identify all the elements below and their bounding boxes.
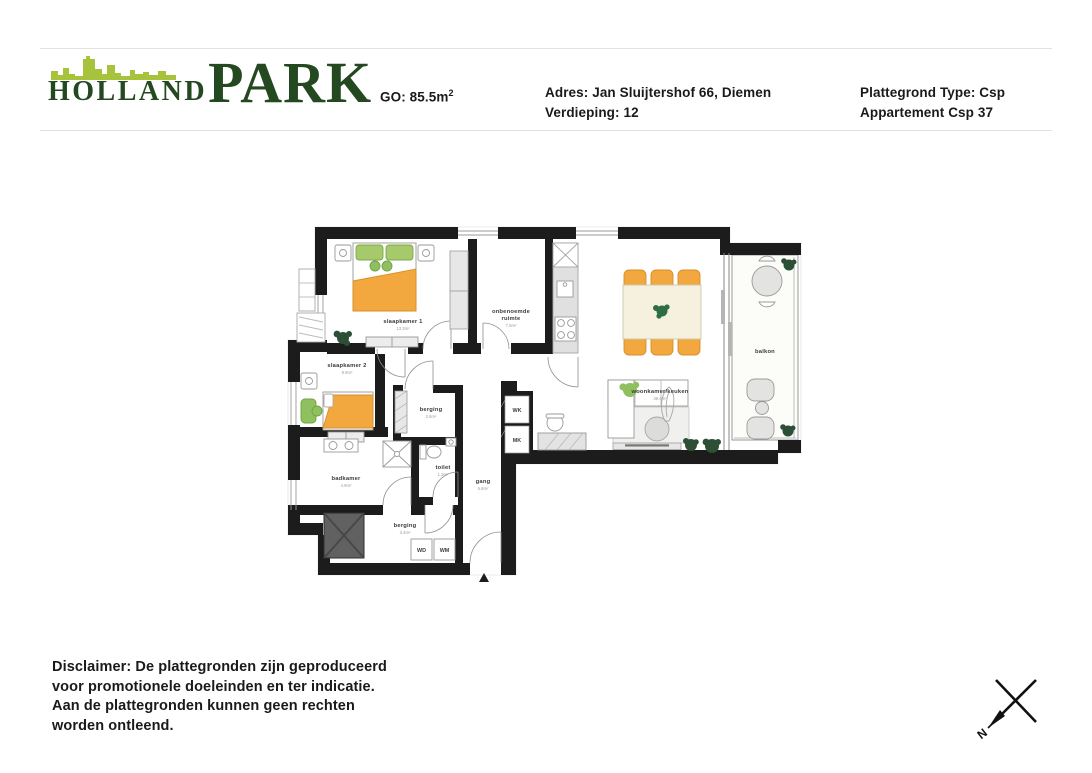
room-area-onbenoemde: 7.5m²	[506, 323, 517, 328]
washer-label: WM	[440, 548, 450, 554]
room-area-slaapkamer1: 13.3m²	[396, 326, 410, 331]
pillow	[386, 245, 413, 260]
plan-type-line: Plattegrond Type: Csp	[860, 83, 1005, 103]
room-area-berging2: 3.4m²	[400, 530, 411, 535]
compass-north-label: N	[975, 726, 990, 742]
disclaimer-line: worden ontleend.	[52, 717, 387, 737]
room-area-toilet: 1.3m²	[438, 472, 449, 477]
go-area: GO: 85.5m2	[380, 83, 454, 108]
balcony-table	[752, 266, 782, 296]
wk-label: WK	[513, 408, 522, 414]
room-area-gang: 5.6m²	[478, 486, 489, 491]
room-label-slaapkamer2: slaapkamer 2	[327, 363, 366, 369]
room-area-berging1: 2.6m²	[426, 414, 437, 419]
logo-word-holland: HOLLAND	[48, 81, 207, 104]
go-area-sup: 2	[448, 88, 453, 98]
pillow	[356, 245, 383, 260]
plan-type-block: Plattegrond Type: Csp Appartement Csp 37	[860, 83, 1005, 123]
room-label-onbenoemde-1: onbenoemde	[492, 309, 531, 315]
pillow	[324, 394, 333, 407]
floor-plan: WD WM WK MK	[283, 195, 813, 590]
logo-word-park: PARK	[208, 62, 372, 104]
floor-line: Verdieping: 12	[545, 103, 771, 123]
sliding-door-panel-2	[728, 322, 732, 356]
technical-closets: WK MK	[501, 391, 533, 457]
north-arrow-icon: N	[972, 670, 1050, 746]
compass: N	[972, 670, 1050, 751]
dryer-label: WD	[417, 548, 426, 554]
go-area-label: GO: 85.5m	[380, 90, 448, 105]
header-divider-top	[40, 48, 1052, 49]
room-label-toilet: toilet	[435, 465, 450, 471]
desk	[538, 433, 586, 450]
closet	[299, 269, 315, 311]
tv	[625, 444, 669, 446]
disclaimer-line: Aan de plattegronden kunnen geen rechten	[52, 697, 387, 717]
room-label-onbenoemde-2: ruimte	[502, 316, 521, 322]
lounge-chair	[747, 379, 774, 401]
balcony-side-table	[756, 402, 769, 415]
wardrobe	[450, 291, 468, 329]
address-line: Adres: Jan Sluijtershof 66, Diemen	[545, 83, 771, 103]
room-label-berging2: berging	[394, 523, 417, 529]
disclaimer-line: Disclaimer: De plattegronden zijn geprod…	[52, 658, 387, 678]
shaft	[324, 513, 364, 558]
address-block: Adres: Jan Sluijtershof 66, Diemen Verdi…	[545, 83, 771, 123]
sliding-door-panel	[721, 290, 725, 324]
mk-label: MK	[513, 438, 521, 444]
kitchen	[553, 243, 578, 353]
room-area-woonkamer: 39.4m²	[653, 396, 667, 401]
room-label-slaapkamer1: slaapkamer 1	[383, 319, 423, 325]
apartment-line: Appartement Csp 37	[860, 103, 1005, 123]
disclaimer-line: voor promotionele doeleinden en ter indi…	[52, 678, 387, 698]
room-label-berging1: berging	[420, 407, 443, 413]
disclaimer: Disclaimer: De plattegronden zijn geprod…	[52, 658, 387, 736]
dining-set	[623, 270, 701, 355]
room-area-slaapkamer2: 9.9m²	[342, 370, 353, 375]
wardrobe	[450, 251, 468, 291]
room-label-woonkamer: woonkamer/keuken	[630, 389, 688, 395]
room-area-badkamer: 4.9m²	[341, 483, 352, 488]
room-label-badkamer: badkamer	[332, 476, 362, 482]
wc-bowl	[427, 446, 441, 458]
lounge-chair	[747, 417, 774, 439]
header-divider-bottom	[40, 130, 1052, 131]
floorplan-page: { "header": { "logo": { "word1": "HOLLAN…	[0, 0, 1092, 773]
logo-left-column: HOLLAND	[48, 56, 207, 104]
room-label-balkon: balkon	[755, 349, 775, 355]
holland-park-logo: HOLLAND PARK	[48, 56, 372, 104]
floor-plan-svg: WD WM WK MK	[283, 195, 813, 585]
berging1-duct	[395, 391, 407, 433]
wc-tank	[420, 445, 426, 459]
room-label-gang: gang	[476, 479, 491, 485]
